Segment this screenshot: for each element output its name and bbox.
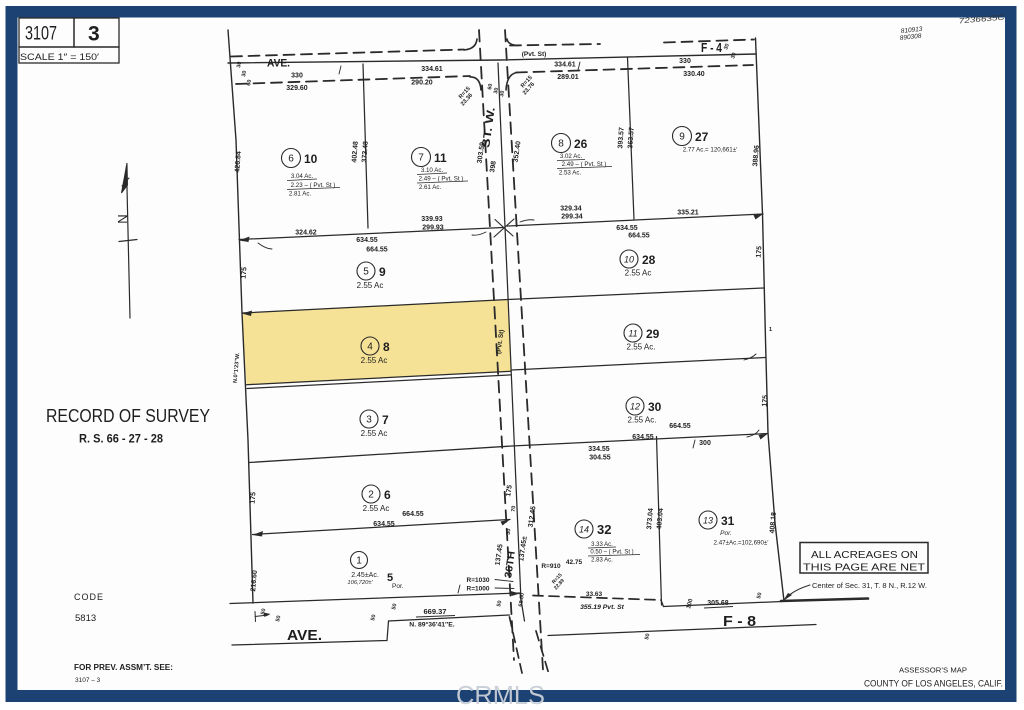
svg-text:3: 3: [88, 23, 100, 46]
svg-text:27: 27: [695, 130, 709, 144]
svg-text:ASSESSOR’S MAP: ASSESSOR’S MAP: [899, 668, 967, 675]
svg-text:330.40: 330.40: [683, 71, 705, 78]
svg-text:372.48: 372.48: [361, 141, 369, 163]
svg-text:Center of Sec. 31, T. 8 N.,: Center of Sec. 31, T. 8 N., R.12 W.: [812, 581, 927, 590]
svg-text:175: 175: [250, 492, 258, 504]
svg-text:2.55 Ac: 2.55 Ac: [361, 429, 388, 438]
svg-text:11: 11: [434, 151, 447, 165]
svg-text:SCALE 1″ = 150′: SCALE 1″ = 150′: [20, 52, 99, 62]
svg-text:8: 8: [558, 139, 564, 150]
svg-text:2.55 Ac.: 2.55 Ac.: [627, 343, 656, 352]
svg-text:2.55 Ac.: 2.55 Ac.: [628, 416, 657, 425]
svg-text:4: 4: [367, 342, 373, 353]
svg-text:F - 4: F - 4: [701, 40, 723, 55]
svg-text:7: 7: [418, 153, 424, 164]
svg-text:330: 330: [679, 58, 691, 65]
svg-text:1: 1: [769, 327, 772, 333]
svg-text:ALL ACREAGES ON: ALL ACREAGES ON: [811, 549, 918, 561]
svg-text:31: 31: [721, 514, 735, 528]
svg-text:2.55 Ac: 2.55 Ac: [361, 356, 388, 365]
svg-text:COUNTY OF LOS ANGELES, CALIF.: COUNTY OF LOS ANGELES, CALIF.: [864, 679, 1003, 690]
svg-text:106,720±′: 106,720±′: [347, 580, 373, 586]
svg-text:60: 60: [246, 79, 253, 86]
svg-text:29: 29: [646, 327, 660, 341]
svg-text:CODE: CODE: [74, 592, 104, 602]
svg-text:30: 30: [506, 528, 513, 535]
svg-text:2.83 Ac.: 2.83 Ac.: [591, 558, 613, 564]
svg-text:2.81 Ac.: 2.81 Ac.: [289, 191, 312, 198]
svg-text:2.53 Ac.: 2.53 Ac.: [559, 170, 582, 177]
svg-text:335.21: 335.21: [677, 210, 699, 217]
svg-text:26: 26: [574, 137, 588, 151]
svg-text:304.55: 304.55: [589, 455, 611, 462]
svg-text:334.55: 334.55: [588, 446, 610, 453]
svg-text:42.75: 42.75: [566, 559, 583, 566]
svg-text:669.37: 669.37: [424, 607, 447, 616]
svg-text:R=910: R=910: [541, 563, 561, 570]
svg-text:11: 11: [628, 329, 637, 339]
svg-text:F - 8: F - 8: [723, 613, 756, 630]
svg-text:10: 10: [304, 152, 318, 166]
svg-text:634.55: 634.55: [632, 434, 654, 441]
svg-text:30: 30: [236, 61, 243, 68]
svg-text:FOR PREV. ASSM’T. SEE:: FOR PREV. ASSM’T. SEE:: [74, 663, 173, 672]
svg-text:14: 14: [579, 525, 589, 535]
svg-text:2.55 Ac: 2.55 Ac: [625, 269, 652, 278]
svg-text:AVE.: AVE.: [267, 58, 290, 70]
svg-text:7: 7: [382, 413, 389, 427]
svg-text:N. 89°36′41″E.: N. 89°36′41″E.: [409, 621, 455, 629]
svg-text:299.34: 299.34: [561, 214, 583, 221]
svg-text:634.55: 634.55: [373, 521, 395, 528]
svg-text:290.20: 290.20: [411, 80, 433, 87]
svg-text:634.55: 634.55: [356, 237, 378, 244]
svg-text:300: 300: [699, 440, 711, 447]
svg-text:664.55: 664.55: [366, 247, 388, 254]
svg-text:13: 13: [703, 516, 713, 526]
svg-text:2.45±Ac.: 2.45±Ac.: [351, 572, 379, 579]
svg-text:12: 12: [630, 402, 640, 412]
svg-text:329.34: 329.34: [560, 206, 582, 213]
svg-text:30: 30: [648, 400, 662, 414]
svg-text:9: 9: [679, 132, 685, 143]
svg-text:28: 28: [642, 253, 656, 267]
svg-text:Por.: Por.: [392, 583, 404, 590]
svg-text:CRMLS: CRMLS: [456, 680, 545, 710]
svg-text:330: 330: [291, 73, 303, 80]
svg-text:2.47±Ac.=102,690±′: 2.47±Ac.=102,690±′: [714, 540, 770, 547]
svg-text:634.55: 634.55: [616, 225, 638, 232]
svg-text:8: 8: [383, 340, 390, 354]
svg-text:299.93: 299.93: [422, 225, 444, 232]
svg-text:70: 70: [511, 505, 518, 512]
svg-text:664.55: 664.55: [402, 511, 424, 518]
svg-text:32: 32: [597, 522, 611, 537]
svg-text:664.55: 664.55: [669, 423, 691, 430]
svg-text:363.57: 363.57: [627, 127, 635, 149]
svg-text:3107 – 3: 3107 – 3: [75, 677, 101, 684]
svg-text:289.01: 289.01: [557, 74, 579, 81]
svg-text:Por.: Por.: [720, 530, 732, 537]
svg-text:R=1000: R=1000: [467, 586, 490, 593]
svg-text:5: 5: [363, 267, 369, 278]
svg-text:6: 6: [288, 154, 294, 165]
svg-text:393.57: 393.57: [617, 127, 625, 149]
svg-text:R. S. 66 - 27 - 28: R. S. 66 - 27 - 28: [79, 432, 163, 446]
svg-text:33.63: 33.63: [586, 591, 603, 598]
svg-text:3: 3: [366, 415, 372, 426]
svg-text:175: 175: [756, 246, 764, 258]
svg-text:1: 1: [356, 556, 362, 567]
svg-text:175: 175: [241, 267, 249, 279]
svg-text:305.68: 305.68: [707, 600, 729, 607]
svg-text:30: 30: [241, 70, 248, 77]
svg-text:2.55 Ac: 2.55 Ac: [357, 281, 384, 290]
svg-text:9: 9: [379, 265, 386, 279]
svg-text:2.77 Ac.= 120,661±′: 2.77 Ac.= 120,661±′: [683, 147, 738, 154]
svg-text:355.19 Pvt. St: 355.19 Pvt. St: [580, 604, 625, 611]
svg-text:AVE.: AVE.: [287, 627, 322, 644]
svg-text:334.61: 334.61: [421, 66, 443, 73]
svg-text:2.55 Ac: 2.55 Ac: [363, 504, 390, 513]
svg-text:426.84: 426.84: [234, 151, 242, 173]
svg-text:RECORD OF SURVEY: RECORD OF SURVEY: [46, 406, 210, 426]
svg-text:329.60: 329.60: [286, 85, 308, 92]
svg-text:THIS PAGE ARE NET: THIS PAGE ARE NET: [803, 562, 926, 574]
svg-text:R=1030: R=1030: [467, 577, 490, 584]
svg-text:3.04 Ac.: 3.04 Ac.: [291, 173, 314, 180]
svg-text:3.10 Ac.: 3.10 Ac.: [421, 167, 444, 174]
svg-text:664.55: 664.55: [628, 233, 650, 240]
svg-text:5813: 5813: [75, 613, 96, 624]
svg-text:N: N: [115, 214, 130, 223]
svg-text:30: 30: [499, 90, 506, 97]
svg-text:339.93: 339.93: [421, 216, 443, 223]
svg-text:324.62: 324.62: [295, 230, 317, 237]
svg-text:3.02 Ac.: 3.02 Ac.: [560, 153, 583, 160]
svg-text:2.61 Ac.: 2.61 Ac.: [419, 184, 442, 191]
svg-text:6: 6: [384, 488, 391, 502]
svg-text:2: 2: [368, 490, 374, 501]
svg-text:175: 175: [762, 395, 770, 407]
svg-text:334.61: 334.61: [554, 62, 576, 69]
svg-text:3107: 3107: [25, 24, 57, 45]
svg-text:(Pvt. St): (Pvt. St): [522, 51, 547, 58]
svg-text:10: 10: [624, 255, 634, 265]
svg-text:402.48: 402.48: [351, 141, 359, 163]
